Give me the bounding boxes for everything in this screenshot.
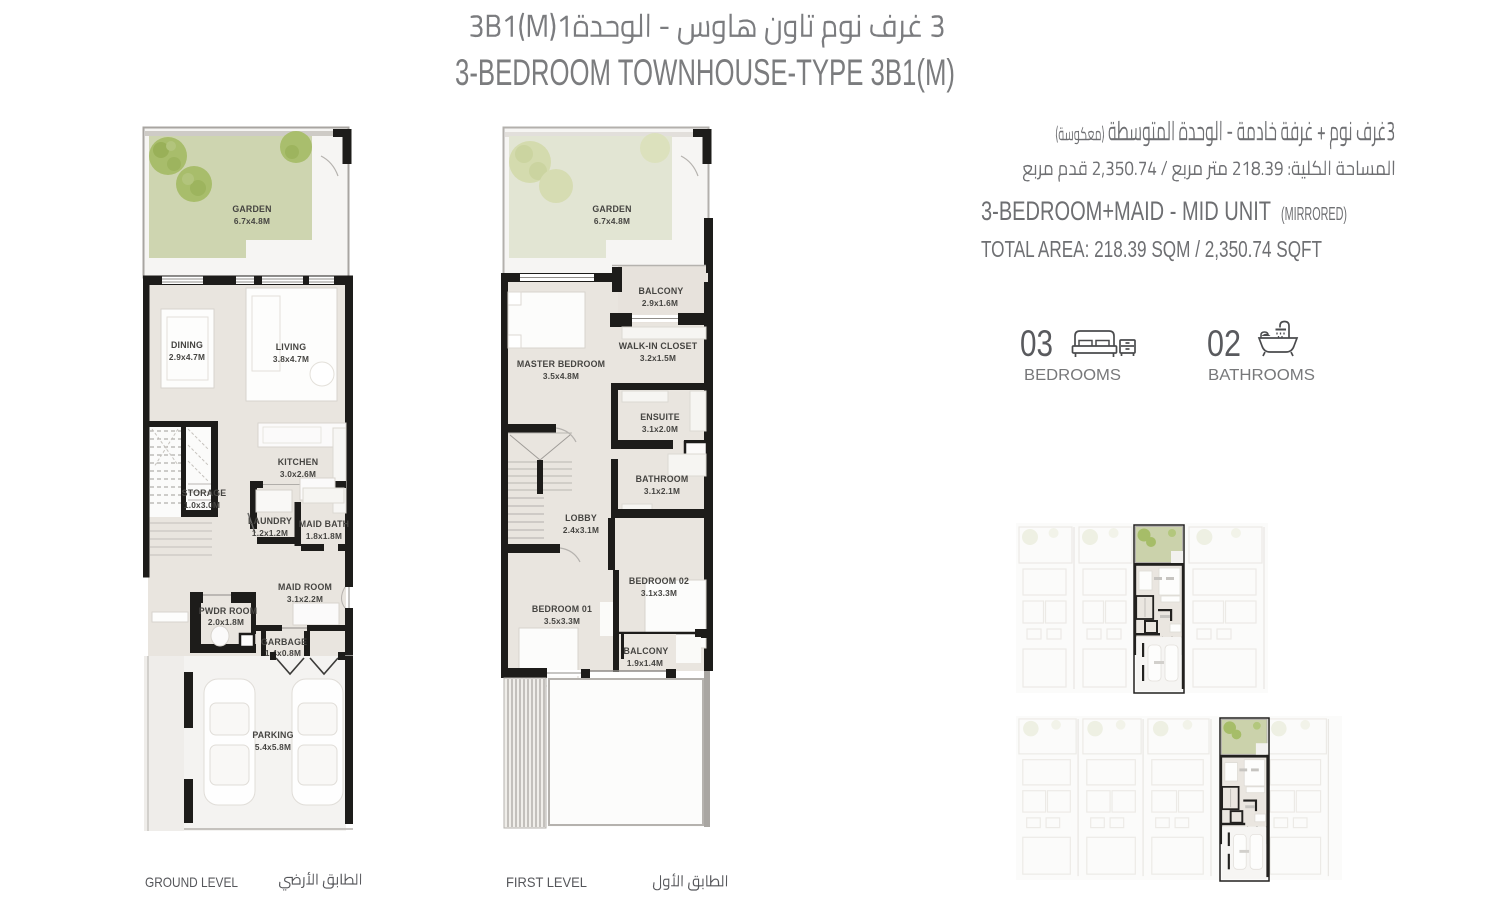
svg-text:3-BEDROOM+MAID - MID UNIT: 3-BEDROOM+MAID - MID UNIT — [981, 196, 1271, 226]
svg-text:3.1x3.3M: 3.1x3.3M — [641, 588, 677, 598]
svg-text:LIVING: LIVING — [276, 342, 307, 352]
svg-text:MAID BATH: MAID BATH — [299, 519, 350, 529]
svg-text:LAUNDRY: LAUNDRY — [248, 516, 292, 526]
svg-text:6.7x4.8M: 6.7x4.8M — [234, 216, 270, 226]
svg-text:1.0x3.0M: 1.0x3.0M — [184, 500, 220, 510]
svg-text:FIRST LEVEL: FIRST LEVEL — [506, 874, 587, 890]
svg-text:PARKING: PARKING — [252, 730, 293, 740]
svg-text:3.5x4.8M: 3.5x4.8M — [543, 371, 579, 381]
svg-text:BEDROOM 01: BEDROOM 01 — [532, 604, 592, 614]
svg-text:PWDR ROOM: PWDR ROOM — [199, 606, 258, 616]
svg-text:5.4x5.8M: 5.4x5.8M — [255, 742, 291, 752]
svg-text:(MIRRORED): (MIRRORED) — [1281, 204, 1347, 224]
svg-text:MASTER BEDROOM: MASTER BEDROOM — [517, 359, 605, 369]
svg-text:02: 02 — [1207, 323, 1241, 364]
svg-text:3.1x2.1M: 3.1x2.1M — [644, 486, 680, 496]
svg-text:TOTAL AREA: 218.39 SQM / 2,350: TOTAL AREA: 218.39 SQM / 2,350.74 SQFT — [981, 236, 1322, 262]
svg-text:KITCHEN: KITCHEN — [278, 457, 319, 467]
svg-text:GARDEN: GARDEN — [232, 204, 271, 214]
svg-text:1.9x1.4M: 1.9x1.4M — [627, 658, 663, 668]
svg-text:03: 03 — [1020, 323, 1053, 364]
svg-text:DINING: DINING — [171, 340, 203, 350]
svg-text:BEDROOM 02: BEDROOM 02 — [629, 576, 689, 586]
svg-text:3.2x1.5M: 3.2x1.5M — [640, 353, 676, 363]
svg-text:LOBBY: LOBBY — [565, 513, 597, 523]
svg-text:WALK-IN CLOSET: WALK-IN CLOSET — [619, 341, 698, 351]
svg-text:3.1x2.2M: 3.1x2.2M — [287, 594, 323, 604]
svg-text:BEDROOMS: BEDROOMS — [1024, 367, 1121, 384]
svg-text:ENSUITE: ENSUITE — [640, 412, 680, 422]
svg-text:2.4x3.1M: 2.4x3.1M — [563, 525, 599, 535]
svg-text:3.1x2.0M: 3.1x2.0M — [642, 424, 678, 434]
svg-text:BALCONY: BALCONY — [624, 646, 669, 656]
svg-text:BALCONY: BALCONY — [639, 286, 684, 296]
svg-text:GARDEN: GARDEN — [592, 204, 631, 214]
svg-text:BATHROOMS: BATHROOMS — [1208, 367, 1315, 384]
svg-text:3.5x3.3M: 3.5x3.3M — [544, 616, 580, 626]
svg-text:GARBAGE: GARBAGE — [261, 637, 307, 647]
svg-text:BATHROOM: BATHROOM — [636, 474, 689, 484]
svg-text:1.8x1.8M: 1.8x1.8M — [306, 531, 342, 541]
svg-text:3-BEDROOM TOWNHOUSE-TYPE 3B1(M: 3-BEDROOM TOWNHOUSE-TYPE 3B1(M) — [455, 52, 955, 93]
svg-text:2.9x1.6M: 2.9x1.6M — [642, 298, 678, 308]
svg-text:6.7x4.8M: 6.7x4.8M — [594, 216, 630, 226]
svg-text:1.2x1.2M: 1.2x1.2M — [252, 528, 288, 538]
svg-text:MAID ROOM: MAID ROOM — [278, 582, 332, 592]
svg-text:STORAGE: STORAGE — [182, 488, 227, 498]
svg-text:GROUND LEVEL: GROUND LEVEL — [145, 874, 238, 890]
svg-text:2.9x4.7M: 2.9x4.7M — [169, 352, 205, 362]
svg-text:2.0x1.8M: 2.0x1.8M — [208, 617, 244, 627]
svg-text:3.8x4.7M: 3.8x4.7M — [273, 354, 309, 364]
